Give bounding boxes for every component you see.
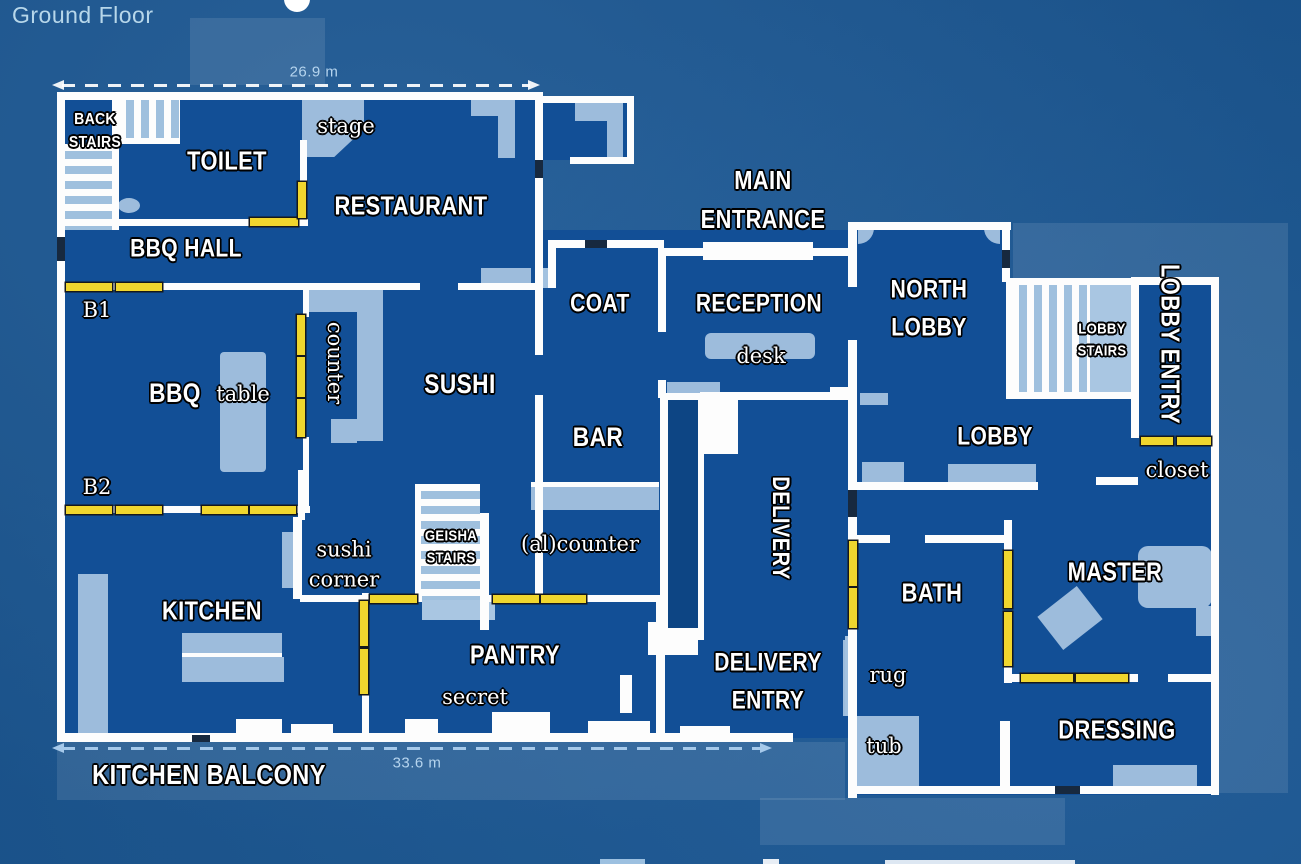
wall-segment (1211, 277, 1219, 795)
wall-segment (1006, 278, 1013, 399)
door-marker (1004, 551, 1012, 608)
annotation-counter: counter (320, 322, 350, 404)
room-label-bbq: BBQ (149, 373, 201, 414)
room-label-kitchen-balcony: KITCHEN BALCONY (92, 754, 326, 796)
furniture (471, 100, 515, 116)
annotation-secret: secret (442, 682, 508, 712)
furniture (182, 657, 284, 682)
wall-segment (848, 340, 857, 392)
annotation-b2: B2 (83, 472, 112, 502)
door-marker (493, 595, 539, 603)
annotation-al-counter: (al)counter (521, 529, 639, 559)
room-label-dressing: DRESSING (1058, 711, 1175, 750)
door-marker (849, 541, 857, 586)
furniture (607, 121, 623, 159)
furniture (531, 486, 659, 510)
room-label-main-entrance: MAINENTRANCE (701, 161, 826, 239)
wall-segment (656, 595, 665, 740)
edge-artifact (600, 859, 645, 864)
door-marker (360, 649, 368, 694)
door-marker (250, 218, 298, 226)
wall-segment (182, 653, 282, 657)
door-marker (297, 357, 305, 397)
wall-segment (848, 482, 1038, 490)
wall-segment (848, 628, 857, 798)
stairs-steps (62, 144, 117, 230)
door-marker (297, 315, 305, 355)
room-label-kitchen: KITCHEN (162, 592, 262, 631)
annotation-rug: rug (869, 660, 906, 690)
wall-segment (1000, 721, 1010, 789)
wall-segment (492, 712, 550, 734)
room-label-north-lobby: NORTHLOBBY (891, 272, 968, 347)
annotation-stage: stage (317, 111, 375, 141)
furniture (220, 352, 266, 472)
door-marker (1021, 674, 1073, 682)
furniture (118, 198, 140, 213)
door-marker (66, 506, 112, 514)
wall-segment (291, 724, 333, 734)
dimension-line-top (62, 84, 530, 87)
wall-segment (1006, 392, 1138, 399)
wall-segment (458, 283, 543, 290)
furniture (1196, 606, 1212, 636)
furniture (575, 103, 623, 121)
furniture (78, 574, 108, 734)
room-label-bath: BATH (902, 574, 963, 613)
wall-segment (405, 719, 438, 734)
door-gap-marker (585, 240, 607, 248)
furniture (1113, 765, 1197, 787)
wall-segment (658, 380, 666, 398)
balcony-overlay (760, 798, 1065, 845)
arrow-right-icon (760, 743, 772, 753)
door-marker (1141, 437, 1173, 445)
room-label-sushi: SUSHI (424, 364, 495, 405)
wall-segment (236, 719, 282, 734)
wall-segment (1096, 477, 1138, 485)
door-marker (1004, 612, 1012, 666)
door-marker (849, 588, 857, 628)
door-gap-marker (1055, 786, 1080, 794)
wall-segment (536, 96, 634, 103)
room-label-delivery: DELIVERY (762, 476, 798, 579)
door-marker (66, 283, 112, 291)
door-gap-marker (848, 490, 857, 517)
arrow-left-icon (52, 743, 64, 753)
edge-artifact (885, 860, 1075, 864)
room-label-lobby: LOBBY (957, 418, 1033, 456)
door-marker (370, 595, 417, 603)
door-marker (541, 595, 586, 603)
annotation-sushi-corner: sushicorner (309, 535, 379, 596)
room-label-lobby-stairs: LOBBYSTAIRS (1077, 318, 1126, 362)
room-label-master: MASTER (1068, 553, 1163, 592)
room-label-restaurant: RESTAURANT (334, 187, 487, 226)
elevator-shaft (668, 400, 698, 628)
wall-segment (119, 138, 180, 144)
wall-segment (548, 240, 556, 288)
annotation-desk: desk (736, 341, 785, 371)
annotation-table: table (216, 379, 270, 409)
door-marker (1177, 437, 1211, 445)
door-marker (116, 506, 162, 514)
wall-segment (535, 395, 543, 597)
wall-segment (704, 398, 738, 454)
door-marker (1076, 674, 1128, 682)
room-label-geisha-stairs: GEISHASTAIRS (425, 525, 477, 569)
door-gap-marker (57, 237, 65, 261)
room-label-delivery-entry: DELIVERYENTRY (714, 645, 822, 720)
wall-segment (298, 470, 305, 520)
door-marker (297, 399, 305, 437)
room-label-reception: RECEPTION (696, 285, 822, 323)
wall-segment (1168, 674, 1217, 682)
stairs-steps (119, 97, 180, 141)
arrow-left-icon (52, 80, 64, 90)
wall-segment (848, 222, 1011, 230)
wall-segment (57, 92, 543, 100)
floor-title: Ground Floor (12, 2, 154, 29)
wall-segment (925, 535, 1012, 543)
annotation-tub: tub (866, 731, 901, 761)
wall-segment (703, 242, 813, 260)
wall-segment (848, 786, 1217, 794)
furniture (282, 532, 293, 588)
room-label-coat: COAT (570, 285, 630, 323)
wall-segment (680, 726, 730, 735)
furniture (331, 419, 357, 443)
room-label-lobby-entry: LOBBY ENTRY (1151, 264, 1190, 424)
wall-segment (848, 392, 857, 490)
dimension-label-bottom: 33.6 m (393, 755, 442, 772)
dimension-line-bottom (62, 747, 762, 750)
wall-segment (57, 92, 65, 741)
door-marker (250, 506, 296, 514)
room-label-bbq-hall: BBQ HALL (130, 230, 242, 268)
wall-segment (362, 694, 369, 735)
wall-segment (535, 178, 543, 355)
wall-segment (627, 96, 634, 164)
blueprint-floorplan: Ground Floor 26.9 m 33.6 m BACKSTAIRS TO… (0, 0, 1301, 864)
furniture (860, 393, 888, 405)
wall-segment (531, 482, 659, 487)
wall-segment (300, 283, 420, 290)
arrow-right-icon (528, 80, 540, 90)
door-gap-marker (1002, 250, 1010, 268)
wall-segment (293, 517, 302, 599)
annotation-closet: closet (1146, 455, 1209, 485)
wall-segment (848, 222, 857, 287)
door-marker (298, 182, 306, 218)
room-label-toilet: TOILET (187, 142, 267, 181)
room-label-back-stairs: BACKSTAIRS (69, 108, 121, 154)
map-pin-dot (284, 0, 310, 12)
room-label-pantry: PANTRY (470, 636, 560, 675)
wall-segment (303, 290, 309, 317)
wall-segment (570, 157, 634, 164)
furniture (182, 633, 282, 654)
door-marker (116, 283, 162, 291)
wall-segment (658, 248, 666, 332)
dimension-label-top: 26.9 m (290, 64, 339, 81)
door-marker (360, 601, 368, 646)
annotation-b1: B1 (83, 295, 112, 325)
door-gap-marker (192, 735, 210, 742)
wall-segment (1006, 278, 1138, 285)
door-marker (202, 506, 248, 514)
wall-segment (480, 513, 489, 630)
wall-segment (415, 484, 421, 602)
wall-segment (1131, 277, 1139, 438)
wall-segment (620, 675, 632, 713)
edge-artifact (763, 859, 779, 864)
room-label-bar: BAR (573, 417, 623, 458)
wall-segment (588, 721, 650, 734)
furniture (498, 116, 515, 158)
door-gap-marker (535, 160, 543, 178)
furniture (357, 288, 383, 441)
